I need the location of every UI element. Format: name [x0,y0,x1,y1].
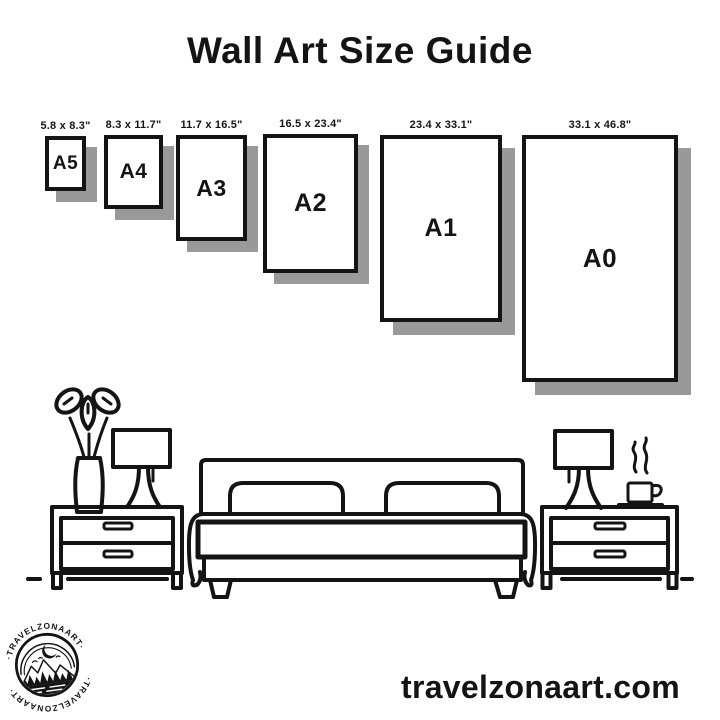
pillow-right [386,483,499,514]
size-item-a3: 11.7 x 16.5" A3 [176,135,247,241]
size-item-a2: 16.5 x 23.4" A2 [263,134,358,273]
nightstand-left-icon [52,507,182,588]
size-dimensions-a0: 33.1 x 46.8" [569,119,632,131]
size-dimensions-a4: 8.3 x 11.7" [106,119,162,131]
size-box-a0: A0 [522,135,678,382]
nightstand-right-icon [542,507,677,588]
poster: Wall Art Size Guide 5.8 x 8.3" A5 8.3 x … [0,0,720,720]
headboard [201,460,523,514]
size-item-a4: 8.3 x 11.7" A4 [104,135,163,209]
bed-base [204,557,521,580]
website-url: travelzonaart.com [401,671,680,703]
size-dimensions-a5: 5.8 x 8.3" [40,120,90,132]
blanket [189,514,535,585]
pillow-left [230,483,343,514]
brand-badge: ·TRAVELZONAART· ·TRAVELZONAART· [0,613,99,717]
size-box-a5: A5 [45,136,86,191]
table-lamp-right-icon [555,431,612,508]
size-box-a3: A3 [176,135,247,241]
table-lamp-left-icon [113,430,170,507]
size-dimensions-a1: 23.4 x 33.1" [410,119,473,131]
size-box-a1: A1 [380,135,502,322]
size-item-a0: 33.1 x 46.8" A0 [522,135,678,382]
mattress [198,522,525,557]
bedroom-illustration [0,360,720,600]
double-bed-icon [189,460,535,597]
steam-icon [633,442,636,472]
steam-icon [644,438,647,473]
size-item-a1: 23.4 x 33.1" A1 [380,135,502,322]
size-dimensions-a3: 11.7 x 16.5" [180,119,242,131]
size-box-a4: A4 [104,135,163,209]
coffee-cup-icon [619,438,662,505]
size-item-a5: 5.8 x 8.3" A5 [45,136,86,191]
page-title: Wall Art Size Guide [0,32,720,69]
size-box-a2: A2 [263,134,358,273]
bed-leg-right [495,580,517,597]
bed-leg-left [210,580,231,597]
size-dimensions-a2: 16.5 x 23.4" [279,118,342,130]
